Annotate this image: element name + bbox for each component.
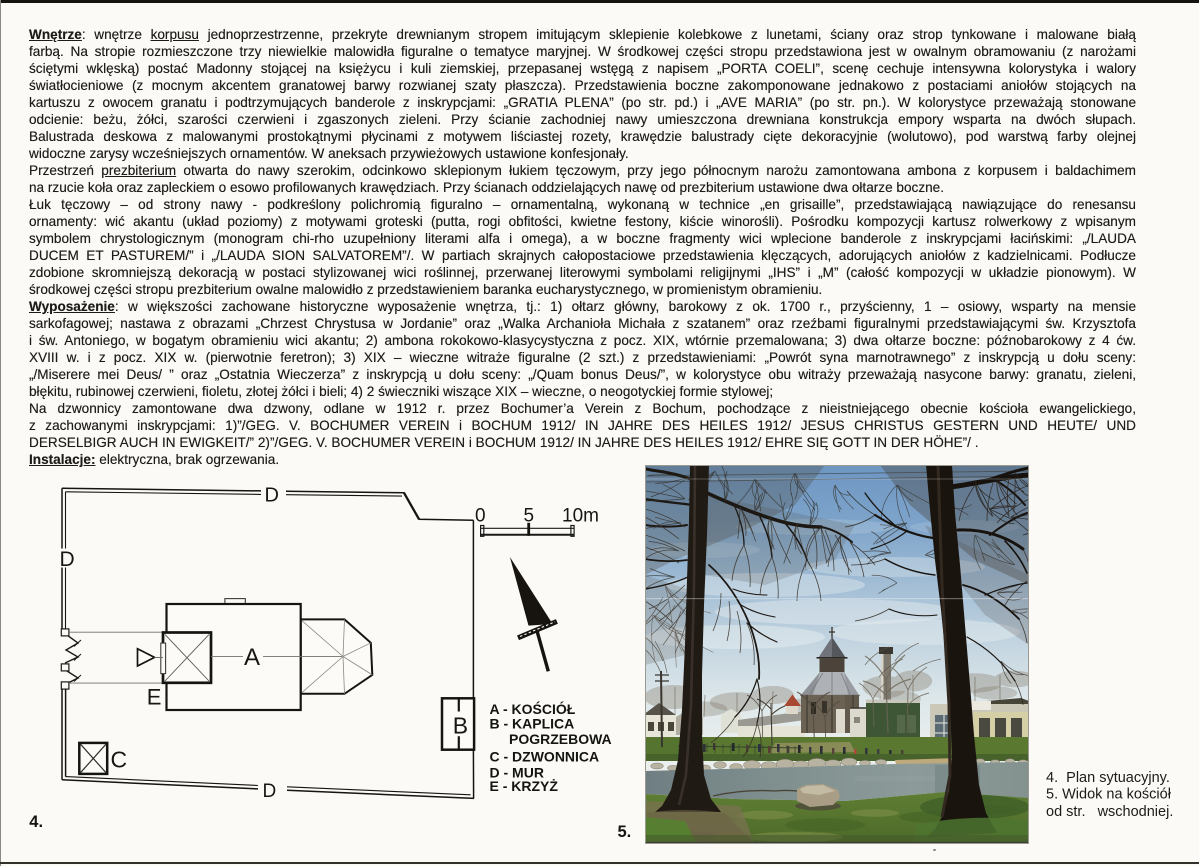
svg-text:C - DZWONNICA: C - DZWONNICA: [490, 749, 600, 765]
svg-text:5: 5: [524, 506, 535, 527]
svg-text:B - KAPLICA: B - KAPLICA: [490, 716, 575, 732]
svg-text:D: D: [265, 485, 279, 507]
svg-text:E: E: [147, 684, 162, 709]
svg-text:od str. wschodniej.: od str. wschodniej.: [1046, 804, 1173, 820]
svg-text:0: 0: [475, 506, 486, 527]
svg-text:4.: 4.: [29, 813, 43, 831]
svg-text:4. Plan sytuacyjny.: 4. Plan sytuacyjny.: [1046, 770, 1170, 786]
svg-text:5.: 5.: [618, 823, 632, 841]
svg-text:C: C: [111, 747, 128, 773]
svg-text:E - KRZYŻ: E - KRZYŻ: [490, 778, 559, 794]
svg-text:POGRZEBOWA: POGRZEBOWA: [509, 731, 612, 747]
svg-text:D: D: [263, 781, 277, 802]
svg-text:D: D: [60, 548, 75, 571]
svg-text:A: A: [244, 644, 260, 671]
svg-text:A - KOŚCIÓŁ: A - KOŚCIÓŁ: [490, 700, 576, 717]
svg-text:10m: 10m: [562, 506, 599, 527]
svg-text:B: B: [453, 712, 468, 738]
svg-text:5. Widok na kościół: 5. Widok na kościół: [1046, 786, 1172, 802]
